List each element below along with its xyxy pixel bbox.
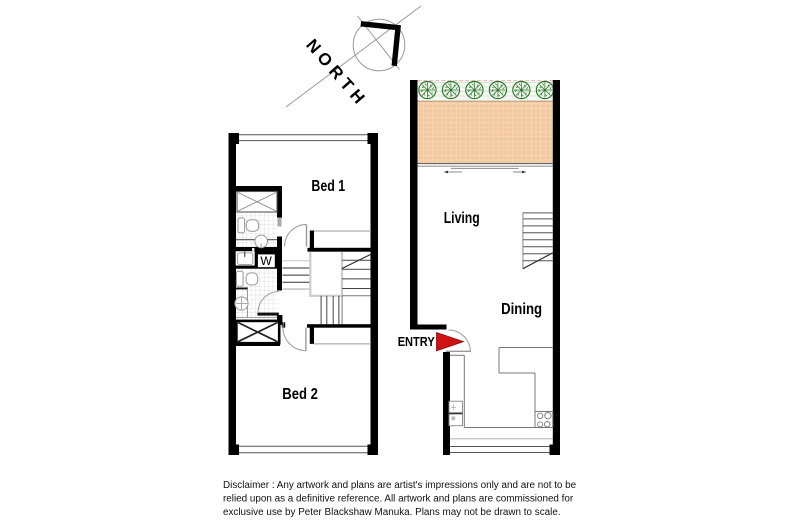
svg-text:ENTRY: ENTRY xyxy=(398,334,435,349)
svg-text:exclusive use by Peter Blacksh: exclusive use by Peter Blackshaw Manuka.… xyxy=(223,507,561,518)
svg-text:W: W xyxy=(260,254,272,268)
svg-text:Bed 2: Bed 2 xyxy=(282,386,318,403)
svg-text:Bed 1: Bed 1 xyxy=(311,178,345,195)
svg-text:Disclaimer : Any artwork and p: Disclaimer : Any artwork and plans are a… xyxy=(223,480,577,491)
svg-text:Dining: Dining xyxy=(501,301,542,318)
svg-text:relied upon as a definitive re: relied upon as a definitive reference. A… xyxy=(223,494,574,505)
svg-text:Living: Living xyxy=(444,210,480,227)
